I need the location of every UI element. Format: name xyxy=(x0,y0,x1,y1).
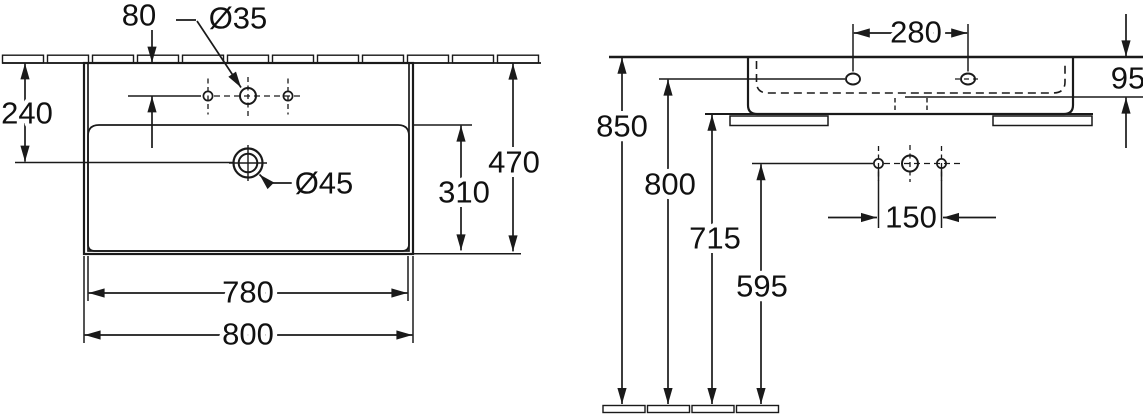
dim-850-label: 850 xyxy=(596,109,648,144)
dim-780-label: 780 xyxy=(222,275,274,310)
dim-470-label: 470 xyxy=(488,145,540,180)
dim-310-label: 310 xyxy=(438,175,490,210)
dim-715-label: 715 xyxy=(689,221,741,256)
plan-view: 80 Ø35 240 470 310 xyxy=(1,0,541,352)
dim-overall-depth: 470 xyxy=(488,64,540,252)
dim-95-label: 95 xyxy=(1111,61,1143,96)
dim-underside-height: 715 xyxy=(689,115,741,404)
elevation-view: 280 95 850 800 715 595 xyxy=(596,14,1143,413)
dim-595-label: 595 xyxy=(736,269,788,304)
dim-fixing-spacing: 280 xyxy=(853,15,968,72)
washbasin-drawing: 80 Ø35 240 470 310 xyxy=(0,0,1143,415)
dim-rim-height: 850 xyxy=(596,58,648,404)
mounting-brackets xyxy=(730,116,1092,126)
dia45-label: Ø45 xyxy=(295,166,354,201)
label-drain-diameter: Ø45 xyxy=(260,166,354,201)
dim-80-label: 80 xyxy=(122,0,156,33)
bowl-hidden-profile xyxy=(757,61,1066,93)
bowl-inner-edge xyxy=(88,125,409,251)
fixing-hole-left xyxy=(846,74,860,85)
dim-supply-height: 595 xyxy=(736,164,873,405)
label-tap-hole-diameter: Ø35 xyxy=(176,1,267,88)
bracket-right xyxy=(993,116,1092,126)
dim-fixing-height: 800 xyxy=(644,79,845,404)
dim-240-label: 240 xyxy=(1,96,53,131)
dia35-label: Ø35 xyxy=(209,1,268,36)
tap-holes-plan xyxy=(128,77,303,116)
dim-800-height-label: 800 xyxy=(644,167,696,202)
floor-line xyxy=(603,406,779,413)
dim-supply-spacing: 150 xyxy=(828,200,996,235)
basin-body xyxy=(748,58,1073,114)
dim-150-label: 150 xyxy=(885,200,937,235)
bracket-left xyxy=(730,116,828,126)
dim-280-label: 280 xyxy=(890,15,942,50)
dim-bowl-width: 780 xyxy=(88,256,408,310)
dim-front-height: 95 xyxy=(1111,14,1143,148)
wall-section-line xyxy=(2,55,541,63)
dim-800-label: 800 xyxy=(222,317,274,352)
basin-outline-elevation xyxy=(609,57,1143,114)
technical-drawing-canvas: 80 Ø35 240 470 310 xyxy=(0,0,1143,415)
dim-drain-offset: 240 xyxy=(1,63,234,162)
fixing-holes xyxy=(846,74,981,85)
